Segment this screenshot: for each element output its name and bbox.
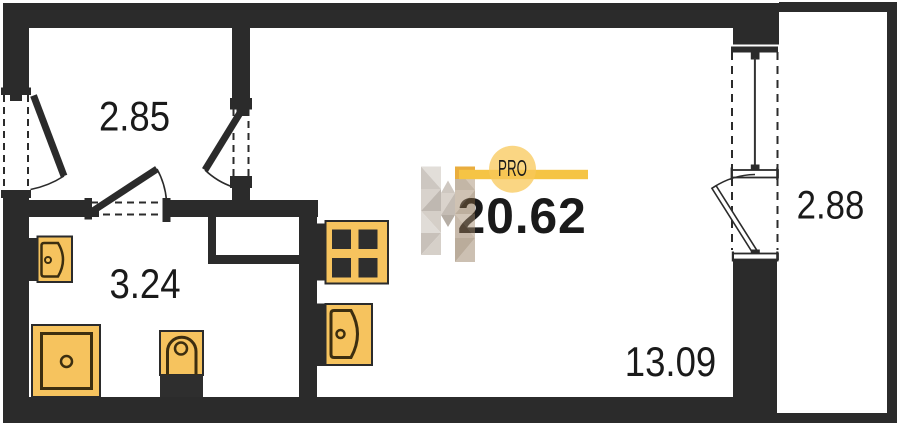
svg-text:2.85: 2.85	[99, 93, 170, 140]
svg-text:20.62: 20.62	[458, 188, 587, 244]
svg-text:PRO: PRO	[498, 155, 527, 181]
svg-text:2.88: 2.88	[797, 182, 865, 227]
svg-text:3.24: 3.24	[109, 261, 180, 308]
svg-text:13.09: 13.09	[625, 339, 716, 386]
